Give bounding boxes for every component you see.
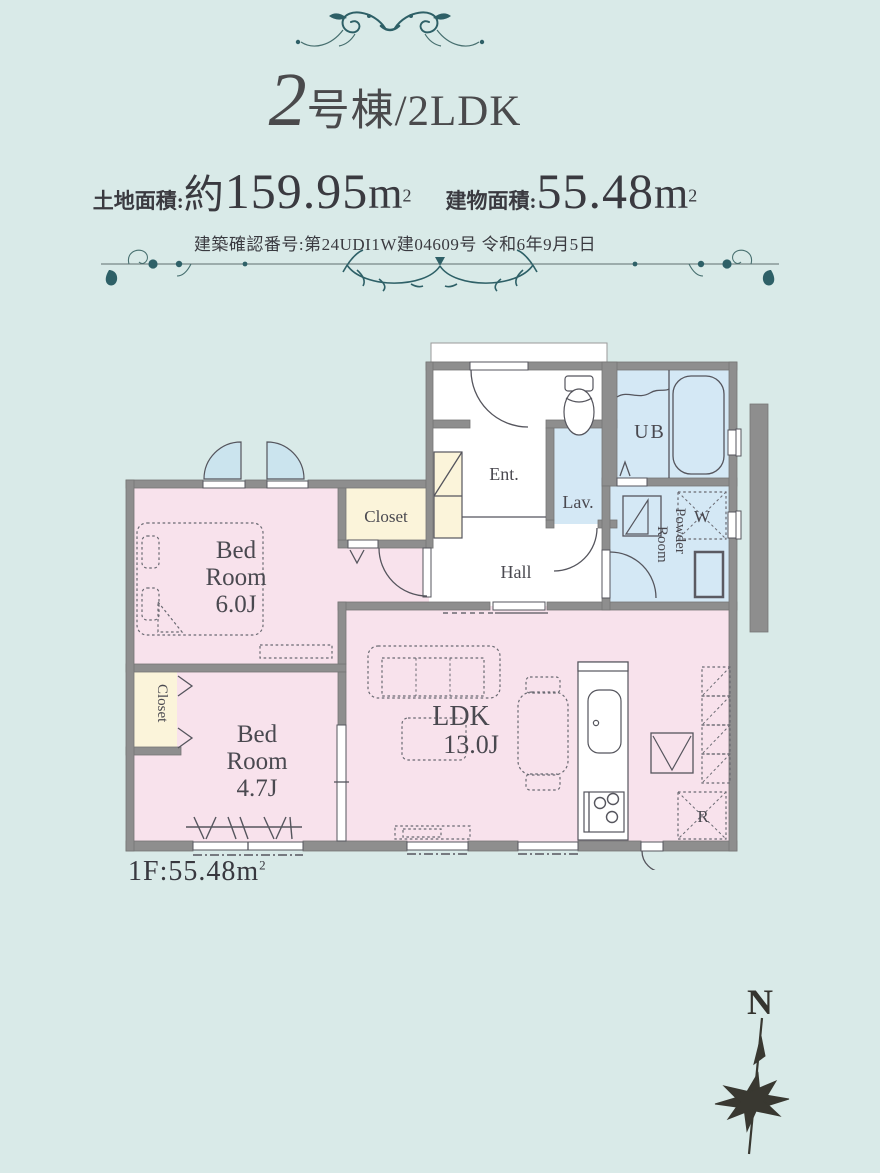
washer-label: W (694, 507, 711, 526)
building-area-unit: m (654, 169, 688, 218)
powder-door (602, 550, 610, 598)
page-title: 2号棟/2LDK (0, 62, 790, 138)
powder-cabinet (695, 552, 723, 597)
bedroom1-label-line3: 6.0J (216, 591, 257, 618)
kitchen-sink (588, 690, 621, 753)
bedroom1-label-line1: Bed (216, 537, 257, 564)
lavatory-label: Lav. (562, 492, 593, 512)
building-area-label: 建物面積: (446, 189, 537, 213)
closet1-door (348, 540, 378, 548)
unit-type: 号棟/2LDK (307, 88, 522, 135)
bedroom1-label-line2: Room (205, 564, 267, 591)
floor-plan: Bed Room 6.0J Bed Room 4.7J LDK 13.0J Cl… (120, 340, 770, 870)
shoe-cabinet (434, 452, 462, 538)
window-swing-left (204, 442, 241, 479)
ldk-window1 (407, 842, 468, 850)
fence (750, 404, 768, 632)
bedroom2-label-line1: Bed (237, 721, 278, 748)
unit-number: 2 (269, 58, 307, 142)
building-area-value: 55.48 (537, 163, 655, 219)
entrance-label: Ent. (489, 464, 519, 484)
ldk-floor (342, 606, 733, 845)
kitchen-back-door (641, 842, 663, 851)
refrigerator-label: R (697, 807, 709, 826)
powder-room-label-line2: Room (654, 526, 670, 563)
ldk-window2 (518, 842, 578, 850)
ldk-label-line2: 13.0J (443, 730, 499, 759)
bedroom1-door (423, 548, 431, 597)
window-swing-right (267, 442, 304, 479)
floorplan-flyer: 2号棟/2LDK 土地面積:約159.95m2建物面積:55.48m2 建築確認… (0, 0, 880, 1173)
divider-flourish-ornament (95, 242, 785, 296)
land-area-unit-sup: 2 (403, 186, 412, 206)
hall-label: Hall (501, 562, 532, 582)
ldk-label-line1: LDK (432, 701, 490, 732)
land-area-unit: m (368, 169, 402, 218)
powder-room-label-line1: Powder (672, 508, 688, 554)
entrance-porch (431, 343, 607, 362)
compass-rose (715, 1018, 789, 1154)
compass: N (688, 982, 858, 1172)
toilet (564, 376, 594, 435)
bedroom2-label-line2: Room (226, 748, 288, 775)
floor-prefix: 1F: (128, 856, 168, 887)
hall-ldk-opening (493, 602, 545, 610)
closet1-label: Closet (364, 507, 408, 526)
header: 2号棟/2LDK 土地面積:約159.95m2建物面積:55.48m2 建築確認… (0, 0, 790, 255)
powder-window-sill (736, 511, 741, 539)
building-area-unit-sup: 2 (688, 186, 697, 206)
floor-area-unit-sup: 2 (259, 858, 267, 873)
bedroom1-window-left (203, 481, 245, 488)
floor-area-unit: m (236, 856, 259, 887)
bedroom1-window-right (267, 481, 308, 488)
land-area-value: 159.95 (225, 163, 369, 219)
bath-door (617, 478, 647, 486)
land-area-approx: 約 (184, 172, 225, 217)
bedroom2-sliding-door (337, 725, 346, 841)
bath-window-sill (736, 429, 741, 456)
kitchen-counter (578, 662, 628, 840)
floor-area-value: 55.48 (168, 856, 236, 887)
top-flourish-ornament (285, 6, 495, 60)
stove (584, 792, 624, 832)
closet2-label: Closet (154, 684, 170, 723)
compass-north-label: N (747, 982, 773, 1022)
bath-label: UB (634, 421, 666, 443)
bedroom2-label-line3: 4.7J (237, 775, 278, 802)
entrance-door (470, 362, 528, 370)
land-area-label: 土地面積: (93, 189, 184, 213)
area-summary: 土地面積:約159.95m2建物面積:55.48m2 (0, 162, 790, 220)
floor-area-caption: 1F:55.48m2 (128, 856, 267, 888)
